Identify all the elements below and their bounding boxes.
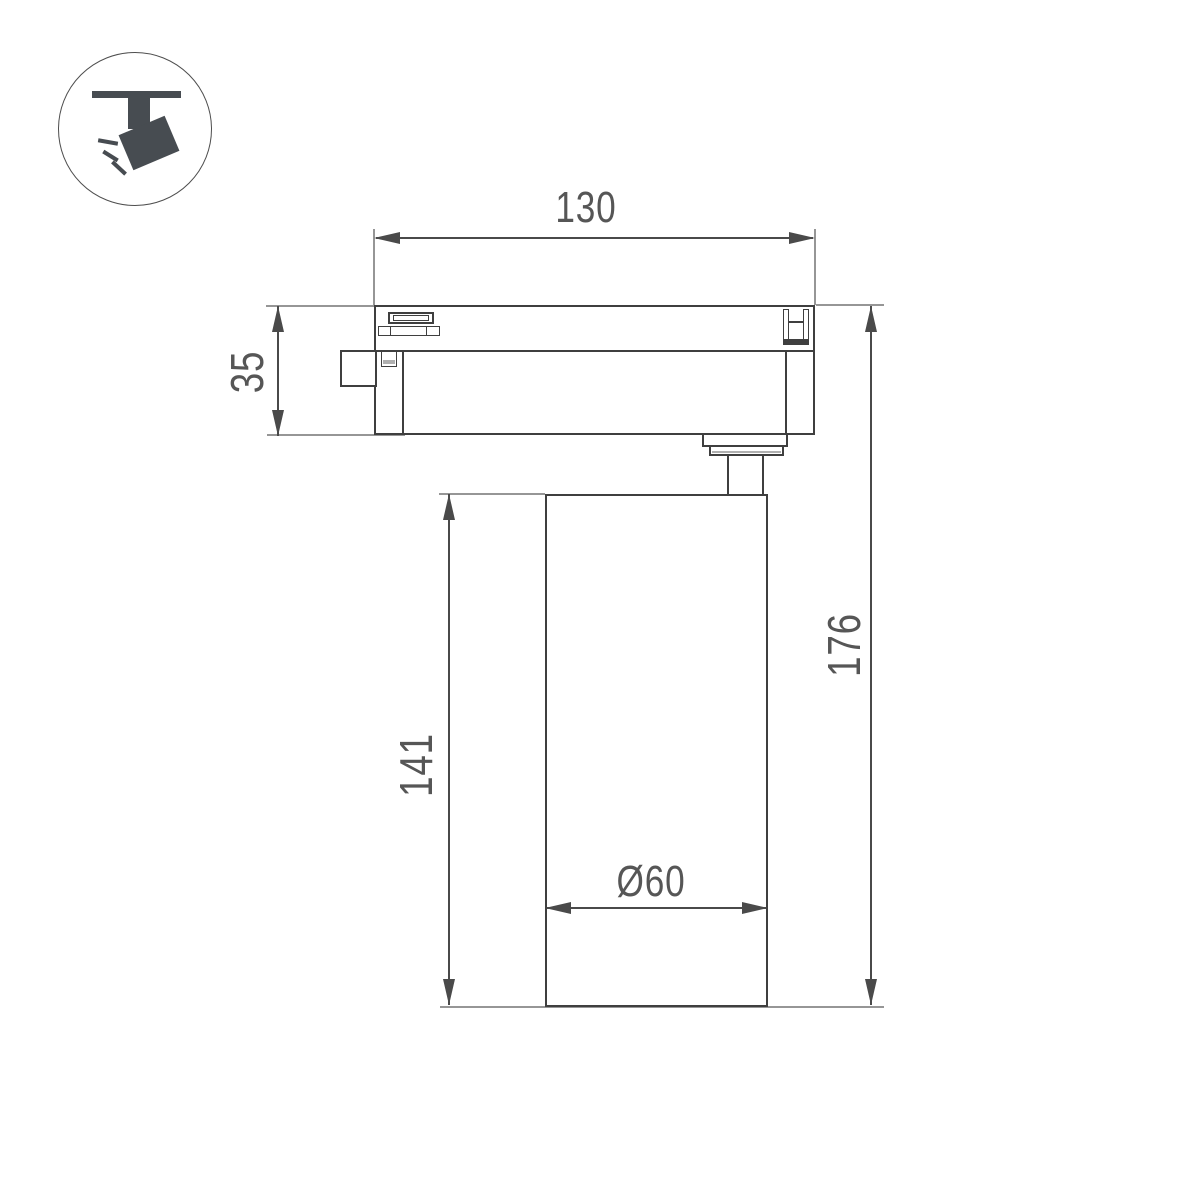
adapter-body-inner-line-right [785,352,787,435]
arrowhead-down [443,979,455,1005]
dimension-label-d60: Ø60 [571,860,731,904]
swivel-joint-step1 [702,435,788,447]
track-spotlight-icon [58,52,212,206]
adapter-latch-tab-shade [383,360,395,364]
arrowhead-left [545,902,571,914]
arrowhead-right [742,902,768,914]
arrowhead-up [865,306,877,332]
adapter-clip-divider [426,327,427,335]
track-adapter-body-outline [374,352,815,435]
dimension-line-141 [448,494,450,1005]
dimension-line-130 [376,237,813,239]
dimension-label-176: 176 [821,565,867,725]
dimension-line-d60 [547,907,766,909]
arrowhead-left [374,232,400,244]
adapter-latch-lever [340,350,377,387]
track-adapter-upper-outline [374,305,815,352]
dimension-label-35: 35 [224,292,270,452]
icon-light-ray [111,160,127,175]
technical-drawing: 130 35 141 176 Ø60 [0,0,1200,1200]
lamp-body-cylinder [545,494,768,1007]
adapter-clip-lower [378,326,440,336]
arrowhead-up [443,494,455,520]
dimension-label-130: 130 [506,186,666,230]
track-contact-crossbar [788,321,804,323]
adapter-body-inner-line-left [402,352,404,435]
dimension-label-141: 141 [393,685,439,845]
arrowhead-right [789,232,815,244]
swivel-joint-shade [712,451,781,453]
adapter-clip-upper-inner [393,315,429,321]
arrowhead-up [272,306,284,332]
icon-light-ray [98,138,118,145]
dimension-line-176 [870,306,872,1005]
swivel-stem [727,456,764,494]
arrowhead-down [272,410,284,436]
adapter-clip-divider [390,327,391,335]
track-contact-base [783,339,809,345]
icon-light-ray [102,150,119,162]
arrowhead-down [865,979,877,1005]
